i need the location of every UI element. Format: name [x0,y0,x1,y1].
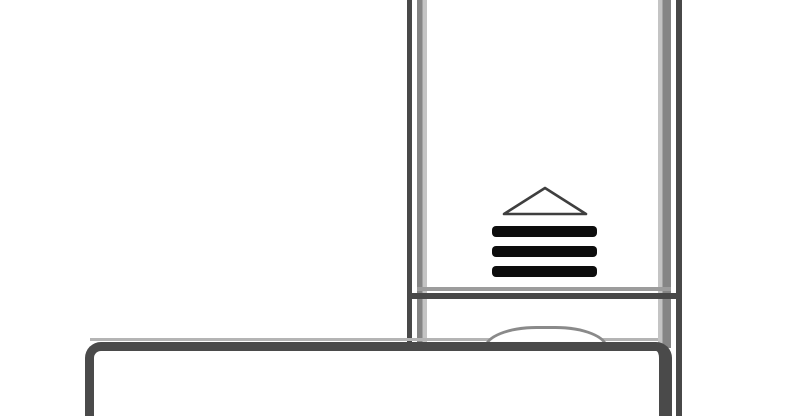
column-outer-right-line [676,0,682,416]
vent-slat [492,226,597,237]
vent-grille-icon [492,182,597,282]
vent-slat-group [492,226,597,277]
vent-slat [492,266,597,277]
vent-hood-triangle-icon [504,188,586,214]
figure-canvas [0,0,785,416]
column-outer-bottom-line [407,293,682,299]
vent-slat [492,246,597,257]
base-cabinet [85,342,672,416]
column-inner-bottom-line [417,287,671,291]
